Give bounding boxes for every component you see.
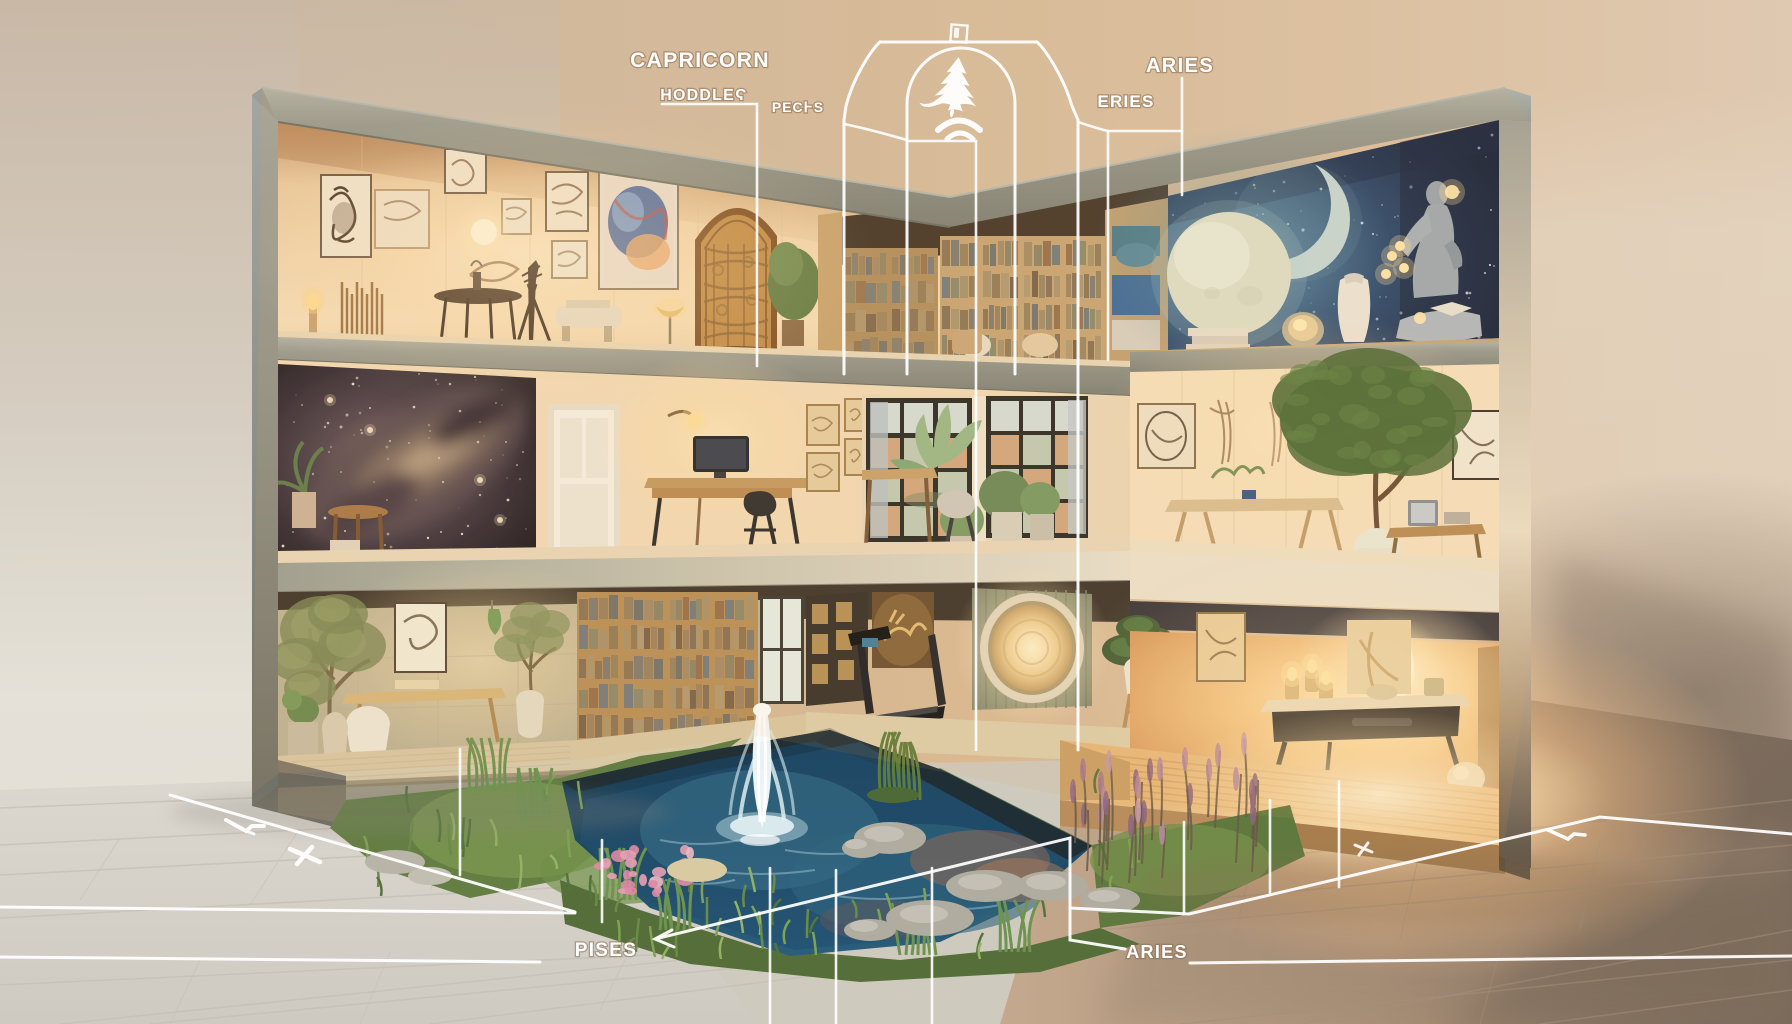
svg-text:HODDLEϚ: HODDLEϚ <box>660 87 748 104</box>
svg-text:PISES: PISES <box>575 940 637 961</box>
svg-text:ERIES: ERIES <box>1097 92 1154 111</box>
svg-text:PECͰS: PECͰS <box>772 99 824 115</box>
svg-text:CAPRICORN: CAPRICORN <box>630 49 770 72</box>
svg-text:ARIES: ARIES <box>1146 55 1214 77</box>
svg-text:ARIES: ARIES <box>1126 942 1188 962</box>
